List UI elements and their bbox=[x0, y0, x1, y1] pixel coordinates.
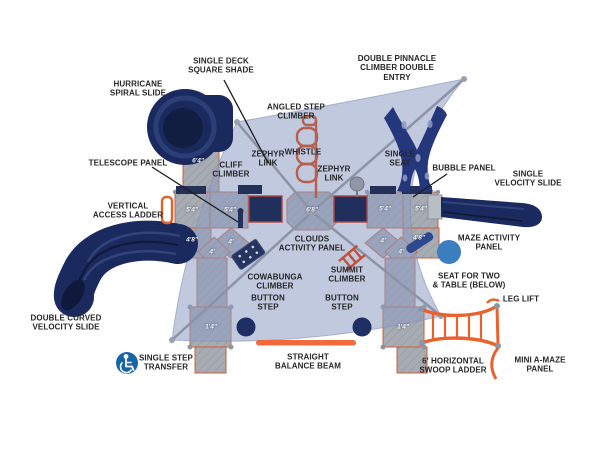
button-step-left-item bbox=[237, 318, 256, 337]
label-angled-step-climber: ANGLED STEP CLIMBER bbox=[267, 103, 325, 122]
height-left-4-8: 4'8" bbox=[186, 237, 198, 244]
label-telescope-panel: TELESCOPE PANEL bbox=[89, 158, 168, 167]
vertical-access-ladder-item bbox=[162, 197, 172, 223]
double-curved-velocity-slide bbox=[56, 233, 180, 314]
height-right-outer-5-4: 5'4" bbox=[415, 206, 427, 213]
label-cliff-climber: CLIFF CLIMBER bbox=[212, 161, 249, 180]
wheelchair-icon bbox=[116, 352, 138, 374]
label-bubble-panel: BUBBLE PANEL bbox=[432, 163, 495, 172]
label-clouds-activity-panel: CLOUDS ACTIVITY PANEL bbox=[279, 235, 345, 254]
label-zephyr-link-right: ZEPHYR LINK bbox=[317, 165, 350, 184]
playground-structure-drawing bbox=[0, 0, 600, 450]
label-double-curved-velocity-slide: DOUBLE CURVED VELOCITY SLIDE bbox=[31, 314, 102, 333]
height-tower-6-4: 6'4" bbox=[192, 158, 204, 165]
telescope-panel-item bbox=[238, 208, 244, 228]
height-left-4-a: 4' bbox=[228, 239, 233, 246]
height-right-4-b: 4' bbox=[398, 249, 403, 256]
height-left-1-4: 1'4" bbox=[205, 324, 217, 331]
label-seat-for-two: SEAT FOR TWO & TABLE (BELOW) bbox=[433, 272, 506, 291]
straight-balance-beam-item bbox=[256, 340, 356, 346]
label-vertical-access-ladder: VERTICAL ACCESS LADDER bbox=[93, 202, 163, 221]
cliff-climber-mount bbox=[238, 185, 262, 194]
button-step-right-item bbox=[353, 318, 372, 337]
label-leg-lift: LEG LIFT bbox=[503, 294, 539, 303]
label-double-pinnacle-climber: DOUBLE PINNACLE CLIMBER DOUBLE ENTRY bbox=[358, 54, 436, 82]
hurricane-spiral-slide bbox=[147, 89, 233, 165]
label-straight-balance-beam: STRAIGHT BALANCE BEAM bbox=[275, 353, 341, 372]
label-horizontal-swoop-ladder: 6' HORIZONTAL SWOOP LADDER bbox=[419, 357, 486, 376]
leg-lift-item bbox=[487, 300, 499, 303]
label-maze-activity-panel: MAZE ACTIVITY PANEL bbox=[458, 234, 520, 253]
playground-plan-diagram: SINGLE DECK SQUARE SHADE HURRICANE SPIRA… bbox=[0, 0, 600, 450]
height-right-4-8: 4'8" bbox=[413, 235, 425, 242]
label-whistle: WHISTLE bbox=[285, 147, 322, 156]
label-cowabunga-climber: COWABUNGA CLIMBER bbox=[247, 273, 302, 292]
step-left-low bbox=[195, 347, 226, 373]
label-button-step-left: BUTTON STEP bbox=[251, 294, 285, 313]
label-single-deck-square-shade: SINGLE DECK SQUARE SHADE bbox=[188, 57, 254, 76]
label-single-step-transfer: SINGLE STEP TRANSFER bbox=[139, 354, 193, 373]
mini-a-maze-panel-item bbox=[492, 348, 498, 379]
zephyr-link-right-panel bbox=[334, 196, 367, 222]
label-zephyr-link-left: ZEPHYR LINK bbox=[251, 150, 284, 169]
height-left-outer-5-4: 5'4" bbox=[186, 207, 198, 214]
zephyr-link-left-panel bbox=[249, 196, 282, 222]
single-velocity-slide bbox=[428, 195, 542, 227]
label-summit-climber: SUMMIT CLIMBER bbox=[328, 266, 365, 285]
height-right-inner-5-4: 5'4" bbox=[379, 206, 391, 213]
height-left-inner-5-4: 5'4" bbox=[224, 207, 236, 214]
horizontal-swoop-ladder-item bbox=[421, 306, 498, 346]
label-mini-a-maze-panel: MINI A-MAZE PANEL bbox=[514, 356, 565, 375]
height-right-1-4: 1'4" bbox=[397, 324, 409, 331]
height-center-6-8: 6'8" bbox=[306, 207, 318, 214]
height-right-4-a: 4' bbox=[380, 238, 385, 245]
label-single-seat: SINGLE SEAT bbox=[385, 150, 415, 169]
label-button-step-right: BUTTON STEP bbox=[325, 294, 359, 313]
label-hurricane-spiral-slide: HURRICANE SPIRAL SLIDE bbox=[110, 80, 166, 99]
label-single-velocity-slide: SINGLE VELOCITY SLIDE bbox=[494, 170, 561, 189]
height-left-4-b: 4' bbox=[209, 249, 214, 256]
